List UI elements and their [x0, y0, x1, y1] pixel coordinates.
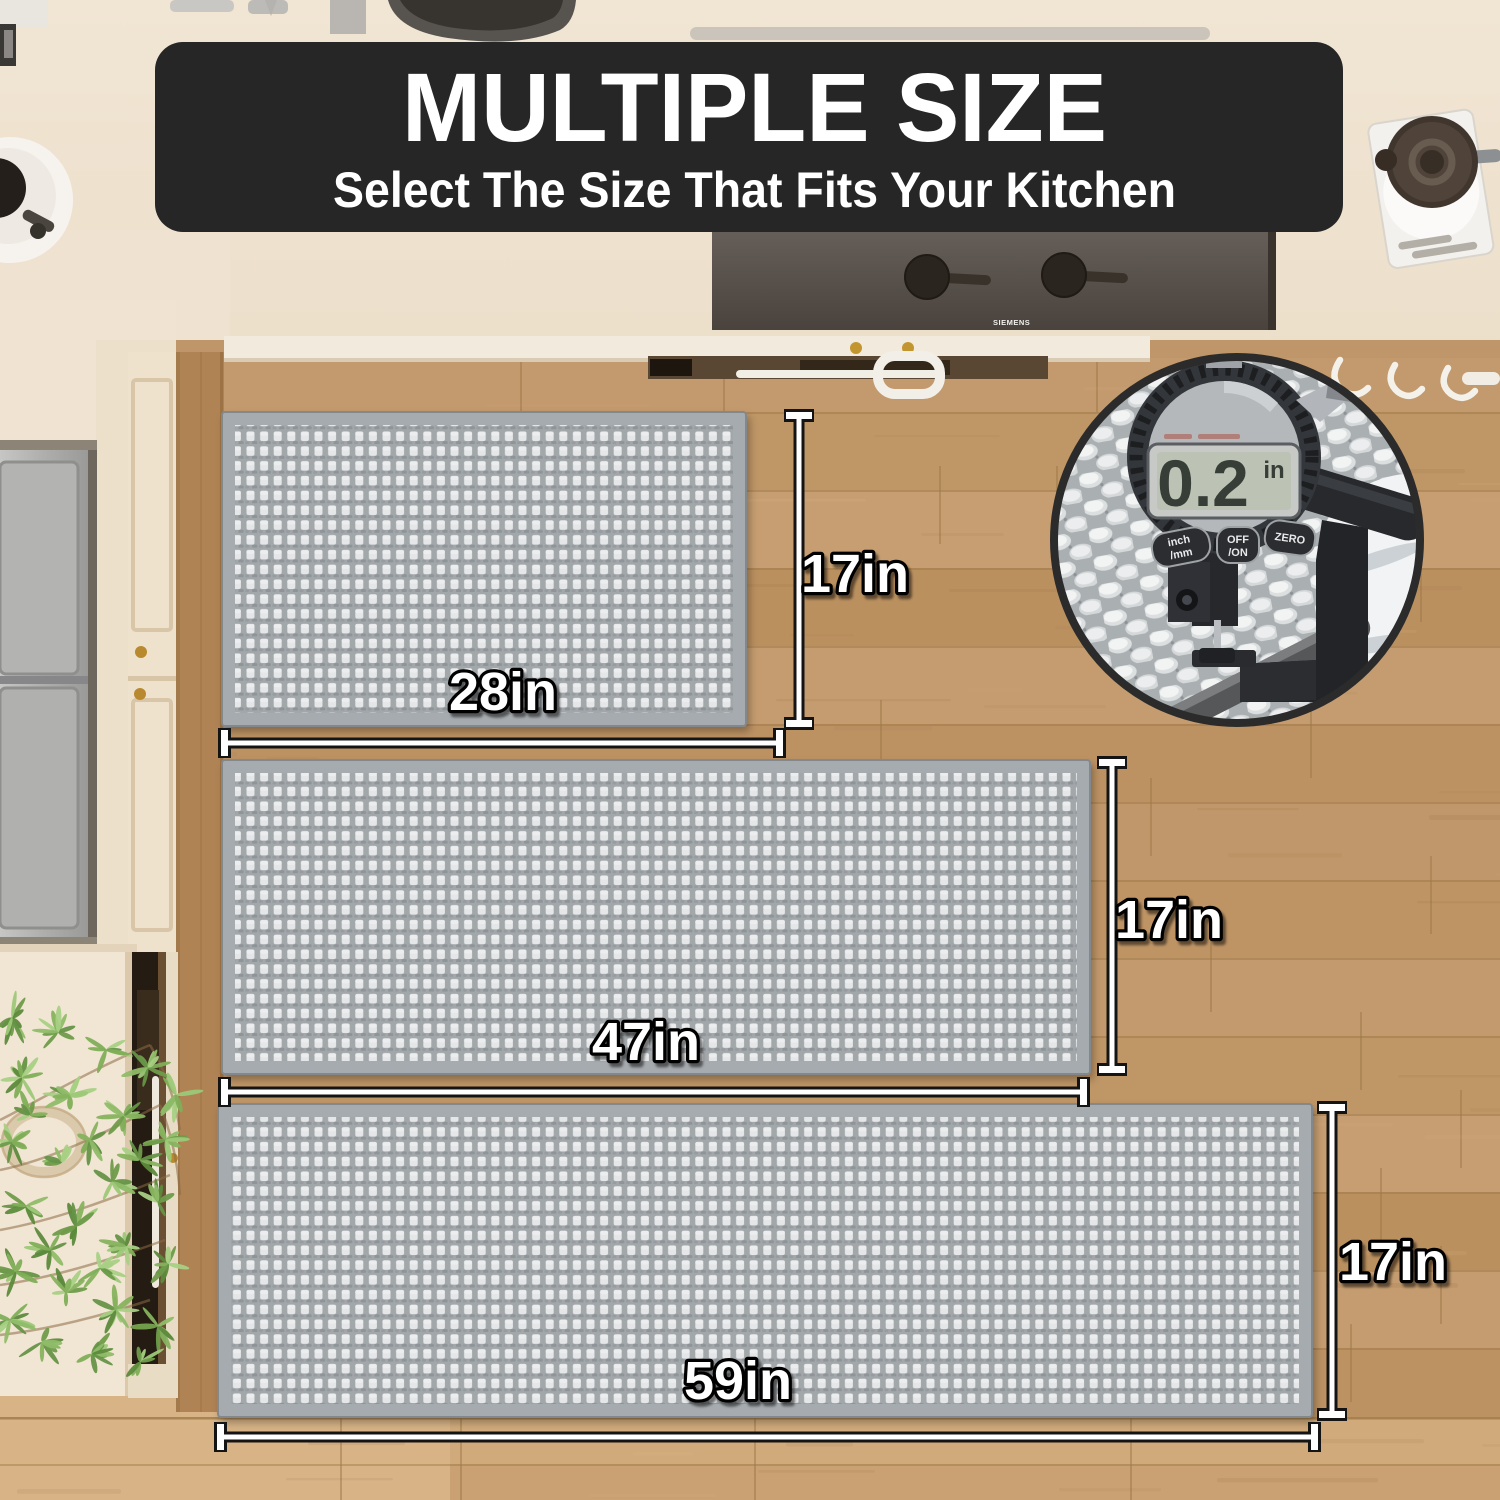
svg-text:/ON: /ON — [1228, 547, 1248, 559]
svg-text:17in: 17in — [1339, 1232, 1447, 1292]
svg-text:17in: 17in — [801, 544, 909, 604]
svg-text:28in: 28in — [449, 662, 557, 722]
svg-text:MULTIPLE SIZE: MULTIPLE SIZE — [402, 53, 1107, 162]
svg-text:Select The Size That Fits Your: Select The Size That Fits Your Kitchen — [333, 162, 1176, 218]
svg-text:in: in — [1263, 457, 1284, 484]
svg-text:47in: 47in — [592, 1012, 700, 1072]
svg-text:0.2: 0.2 — [1157, 446, 1249, 520]
svg-text:SIEMENS: SIEMENS — [993, 318, 1030, 327]
svg-text:OFF: OFF — [1227, 534, 1249, 546]
svg-text:17in: 17in — [1115, 890, 1223, 950]
svg-text:59in: 59in — [684, 1351, 792, 1411]
